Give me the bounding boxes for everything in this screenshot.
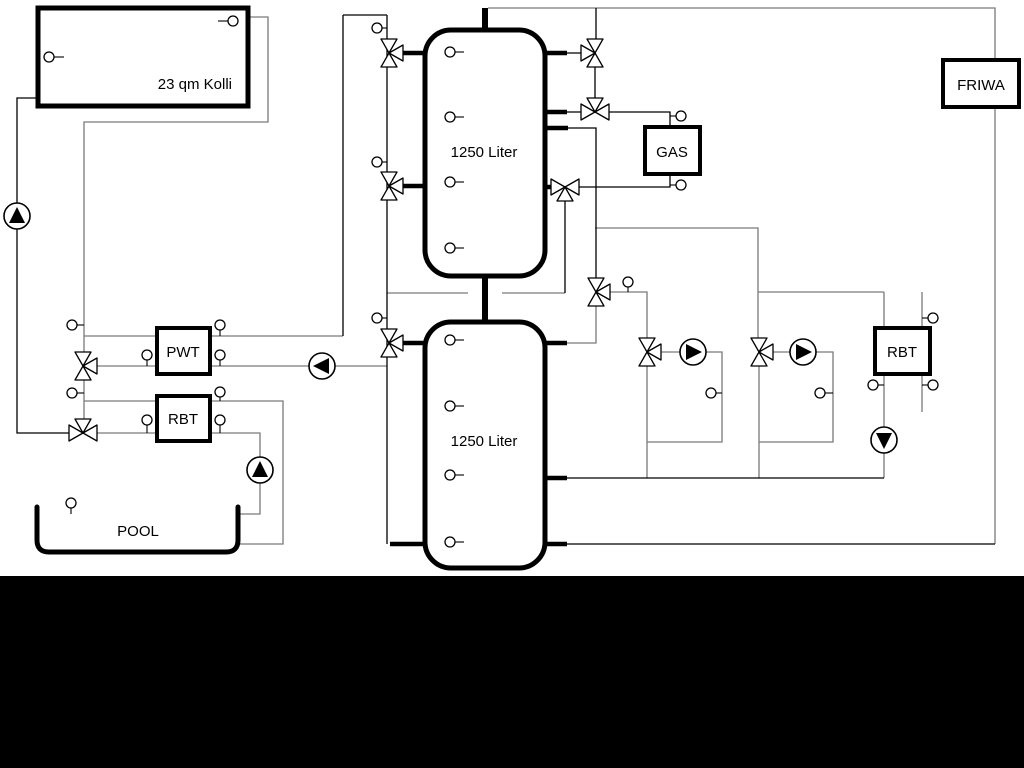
- temperature-sensor-icon-24: [676, 180, 686, 190]
- temperature-sensor-icon-1: [44, 52, 54, 62]
- temperature-sensor-icon-18: [215, 350, 225, 360]
- temperature-sensor-icon-13: [372, 313, 382, 323]
- rbt-left-label: RBT: [168, 411, 198, 428]
- schematic-page: 23 qm Kolli 1250 Liter 1250 Liter PWT RB…: [0, 0, 1024, 768]
- temperature-sensor-icon-27: [815, 388, 825, 398]
- rbt-right-label: RBT: [887, 344, 917, 361]
- temperature-sensor-icon-2: [228, 16, 238, 26]
- hydraulic-schematic-canvas: 23 qm Kolli 1250 Liter 1250 Liter PWT RB…: [0, 0, 1024, 768]
- temperature-sensor-icon-25: [623, 277, 633, 287]
- pwt-label: PWT: [166, 344, 199, 361]
- friwa-label: FRIWA: [957, 77, 1005, 94]
- temperature-sensor-icon-19: [142, 415, 152, 425]
- temperature-sensor-icon-6: [445, 243, 455, 253]
- temperature-sensor-icon-3: [445, 47, 455, 57]
- bottom-black-band: [0, 576, 1024, 768]
- temperature-sensor-icon-14: [67, 320, 77, 330]
- temperature-sensor-icon-29: [928, 313, 938, 323]
- temperature-sensor-icon-11: [372, 23, 382, 33]
- temperature-sensor-icon-8: [445, 401, 455, 411]
- temperature-sensor-icon-26: [706, 388, 716, 398]
- temperature-sensor-icon-16: [142, 350, 152, 360]
- tank-top-label: 1250 Liter: [451, 144, 518, 161]
- gas-label: GAS: [656, 144, 688, 161]
- temperature-sensor-icon-5: [445, 177, 455, 187]
- temperature-sensor-icon-17: [215, 320, 225, 330]
- pool-label: POOL: [117, 523, 159, 540]
- temperature-sensor-icon-30: [928, 380, 938, 390]
- temperature-sensor-icon-23: [676, 111, 686, 121]
- collector-label: 23 qm Kolli: [158, 76, 232, 93]
- temperature-sensor-icon-21: [215, 415, 225, 425]
- temperature-sensor-icon-12: [372, 157, 382, 167]
- temperature-sensor-icon-7: [445, 335, 455, 345]
- temperature-sensor-icon-22: [66, 498, 76, 508]
- temperature-sensor-icon-4: [445, 112, 455, 122]
- temperature-sensor-icon-10: [445, 537, 455, 547]
- temperature-sensor-icon-20: [215, 387, 225, 397]
- temperature-sensor-icon-28: [868, 380, 878, 390]
- temperature-sensor-icon-9: [445, 470, 455, 480]
- tank-bottom-label: 1250 Liter: [451, 433, 518, 450]
- temperature-sensor-icon-15: [67, 388, 77, 398]
